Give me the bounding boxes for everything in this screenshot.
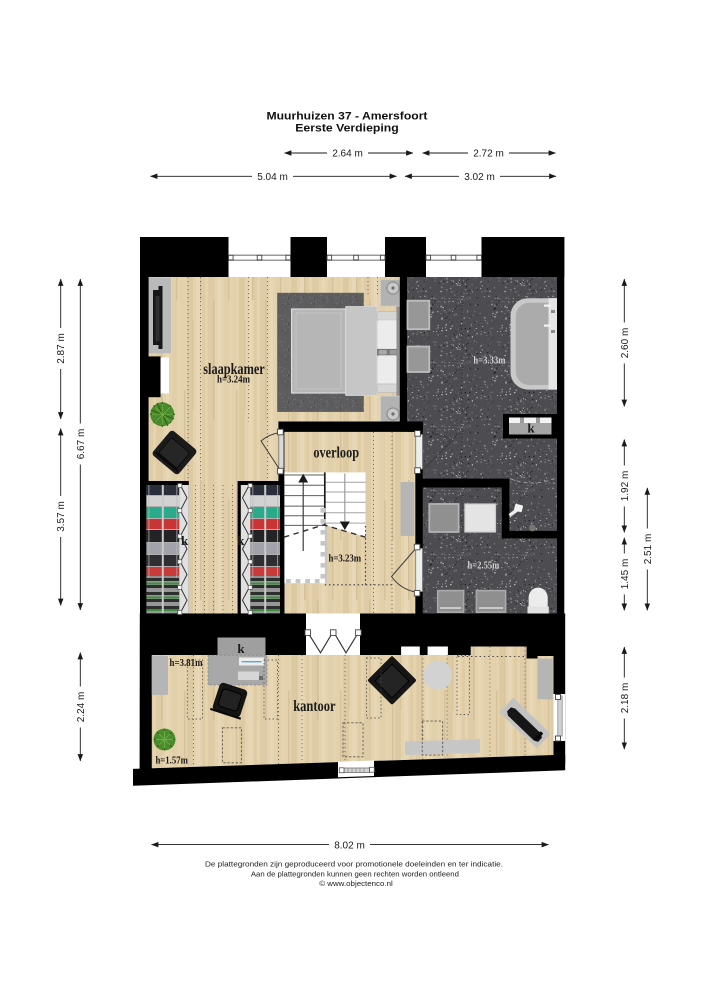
svg-text:h=3.33m: h=3.33m (473, 356, 505, 367)
svg-text:2.64 m: 2.64 m (332, 149, 363, 160)
svg-text:k: k (237, 533, 245, 548)
svg-text:Muurhuizen 37 - Amersfoort: Muurhuizen 37 - Amersfoort (267, 111, 428, 123)
svg-text:2.18 m: 2.18 m (620, 683, 631, 714)
svg-text:2.72 m: 2.72 m (473, 149, 504, 160)
svg-text:2.24 m: 2.24 m (76, 692, 87, 723)
svg-text:6.67 m: 6.67 m (76, 429, 87, 460)
svg-text:1.45 m: 1.45 m (620, 559, 631, 590)
svg-text:8.02 m: 8.02 m (334, 840, 365, 851)
svg-text:3.02 m: 3.02 m (464, 172, 495, 183)
svg-text:2.51 m: 2.51 m (643, 534, 654, 565)
svg-text:kantoor: kantoor (293, 698, 335, 715)
svg-text:k: k (181, 533, 189, 548)
svg-text:© www.objectenco.nl: © www.objectenco.nl (319, 879, 393, 888)
svg-text:h=3.24m: h=3.24m (217, 375, 250, 386)
svg-text:overloop: overloop (313, 444, 359, 461)
svg-text:h=2.55m: h=2.55m (468, 561, 500, 572)
svg-text:h=3.23m: h=3.23m (328, 554, 361, 565)
svg-text:k: k (527, 421, 535, 436)
svg-text:1.92 m: 1.92 m (620, 471, 631, 502)
svg-text:k: k (237, 641, 245, 656)
svg-text:h=3.81m: h=3.81m (170, 658, 203, 669)
svg-text:5.04 m: 5.04 m (257, 172, 288, 183)
svg-text:Aan de plattegronden kunnen ge: Aan de plattegronden kunnen geen rechten… (251, 869, 459, 878)
svg-text:Eerste Verdieping: Eerste Verdieping (295, 123, 399, 135)
svg-text:De plattegronden zijn geproduc: De plattegronden zijn geproduceerd voor … (205, 859, 503, 868)
svg-text:2.60 m: 2.60 m (620, 328, 631, 359)
svg-text:2.87 m: 2.87 m (56, 333, 67, 364)
svg-text:h=1.57m: h=1.57m (155, 756, 188, 767)
svg-text:3.57 m: 3.57 m (56, 501, 67, 532)
